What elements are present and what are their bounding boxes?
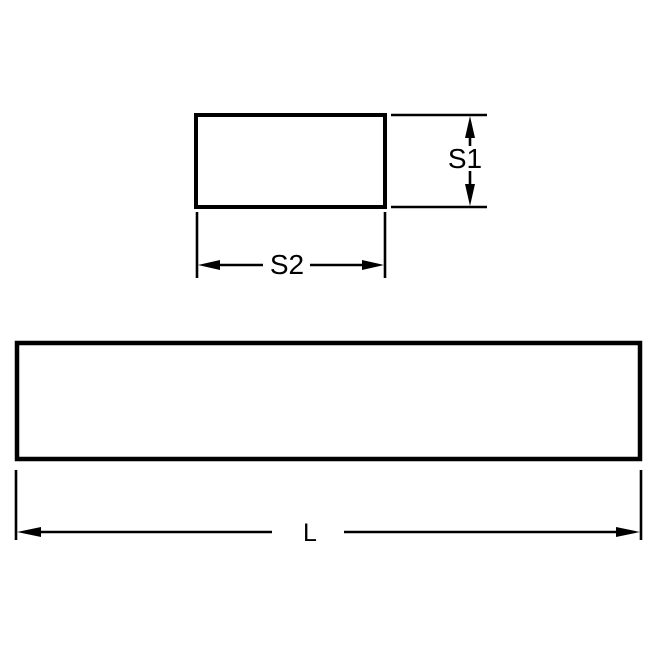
side-view-outline <box>17 343 640 459</box>
cross-section-outline <box>196 115 385 207</box>
s2-label: S2 <box>270 249 304 280</box>
dimension-s1: S1 <box>391 115 487 207</box>
l-arrow-right-icon <box>616 527 640 537</box>
l-label: L <box>303 519 317 547</box>
dimension-s2: S2 <box>197 212 385 280</box>
cross-section-view: S1 S2 <box>196 115 487 280</box>
s1-label: S1 <box>448 143 482 174</box>
s1-arrow-down-icon <box>465 184 475 206</box>
dimension-drawing: S1 S2 L <box>0 0 670 670</box>
side-view: L <box>16 343 641 547</box>
s2-arrow-right-icon <box>362 260 384 270</box>
s2-arrow-left-icon <box>198 260 220 270</box>
dimension-l: L <box>16 470 641 547</box>
s1-arrow-up-icon <box>465 116 475 138</box>
drawing-svg: S1 S2 L <box>0 0 670 670</box>
l-arrow-left-icon <box>17 527 41 537</box>
